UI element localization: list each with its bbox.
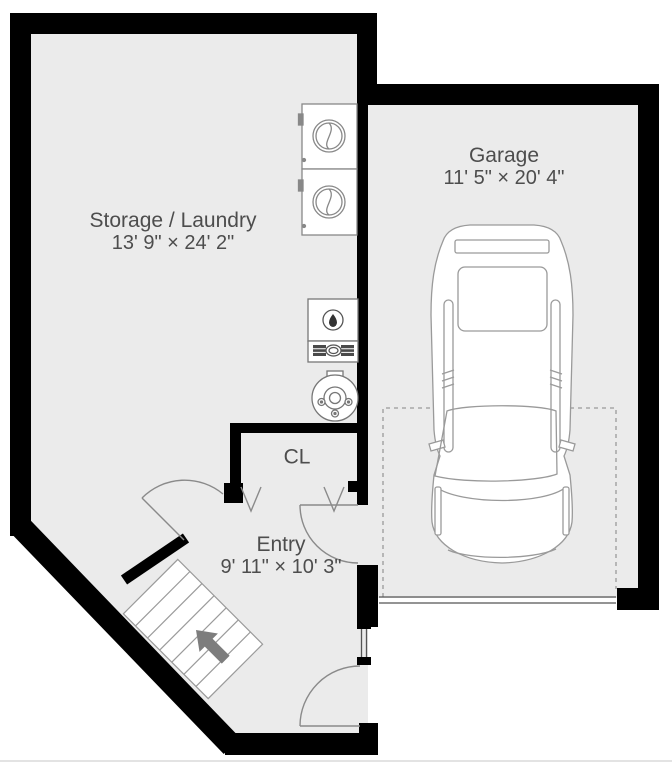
car-front-strip-right xyxy=(563,487,569,535)
room-name: Entry xyxy=(221,533,342,556)
wall-bottom-right-block xyxy=(359,723,378,755)
room-label-storage-laundry: Storage / Laundry 13' 9" × 24' 2" xyxy=(90,209,257,255)
room-dimensions: 9' 11" × 10' 3" xyxy=(221,556,342,579)
wall-left xyxy=(10,13,31,536)
wall-bottom xyxy=(225,733,378,755)
car-rear-window xyxy=(458,267,547,331)
floorplan: Storage / Laundry 13' 9" × 24' 2" Garage… xyxy=(0,0,672,768)
room-name: CL xyxy=(284,446,311,469)
furnace-icon xyxy=(308,299,358,362)
washer-icon xyxy=(299,104,358,169)
room-dimensions: 13' 9" × 24' 2" xyxy=(90,232,257,255)
wall-entry-right xyxy=(357,565,378,627)
car-icon xyxy=(429,225,575,563)
wall-closet-foot xyxy=(224,483,243,503)
window-cap-bottom xyxy=(357,657,371,665)
room-dimensions: 11' 5" × 20' 4" xyxy=(444,167,565,190)
wall-door-stub xyxy=(348,481,357,492)
car-front-strip-left xyxy=(435,487,441,535)
wall-top xyxy=(10,13,377,34)
wall-garage-right-jamb xyxy=(617,588,659,610)
room-name: Garage xyxy=(444,144,565,167)
laundry-machines xyxy=(299,104,358,235)
wall-garage-right xyxy=(638,84,659,590)
wall-garage-top xyxy=(357,84,659,105)
room-name: Storage / Laundry xyxy=(90,209,257,232)
car-side-window-left xyxy=(444,300,453,452)
room-label-garage: Garage 11' 5" × 20' 4" xyxy=(444,144,565,190)
wall-closet-left xyxy=(230,423,241,489)
car-side-window-right xyxy=(551,300,560,452)
room-label-closet: CL xyxy=(284,446,311,469)
floorplan-drawing xyxy=(0,0,672,768)
car-rear-strip xyxy=(455,240,549,253)
window-cap-top xyxy=(357,621,371,629)
dryer-icon xyxy=(299,169,358,235)
wall-closet-top xyxy=(230,423,368,433)
room-label-entry: Entry 9' 11" × 10' 3" xyxy=(221,533,342,579)
